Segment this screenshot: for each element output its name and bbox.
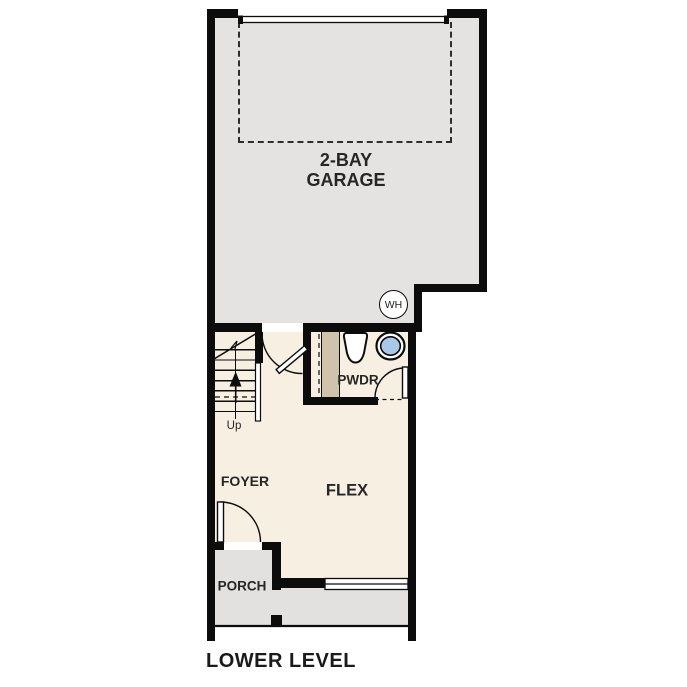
- garage-door-right-cap: [444, 16, 449, 25]
- front-door-swing-arc: [221, 502, 261, 542]
- porch-post: [271, 615, 282, 626]
- floor-plan: WH 2-BAY GARAGE PWDR FOYER FLEX PORCH Up…: [0, 0, 687, 687]
- stair-up-arrow-head: [230, 372, 242, 387]
- plan-vector-overlay: [0, 0, 687, 687]
- stair-rail: [256, 363, 261, 421]
- stair-break-tick: [231, 341, 237, 349]
- garage-door: [241, 17, 446, 23]
- powder-door-leaf: [403, 367, 409, 398]
- garage-entry-door-leaf: [276, 346, 308, 374]
- powder-door-swing-arc: [375, 368, 405, 398]
- garage-door-left-cap: [238, 16, 243, 25]
- front-door-leaf: [218, 502, 224, 542]
- sink-fixture-basin: [381, 337, 401, 355]
- toilet-fixture: [344, 333, 367, 363]
